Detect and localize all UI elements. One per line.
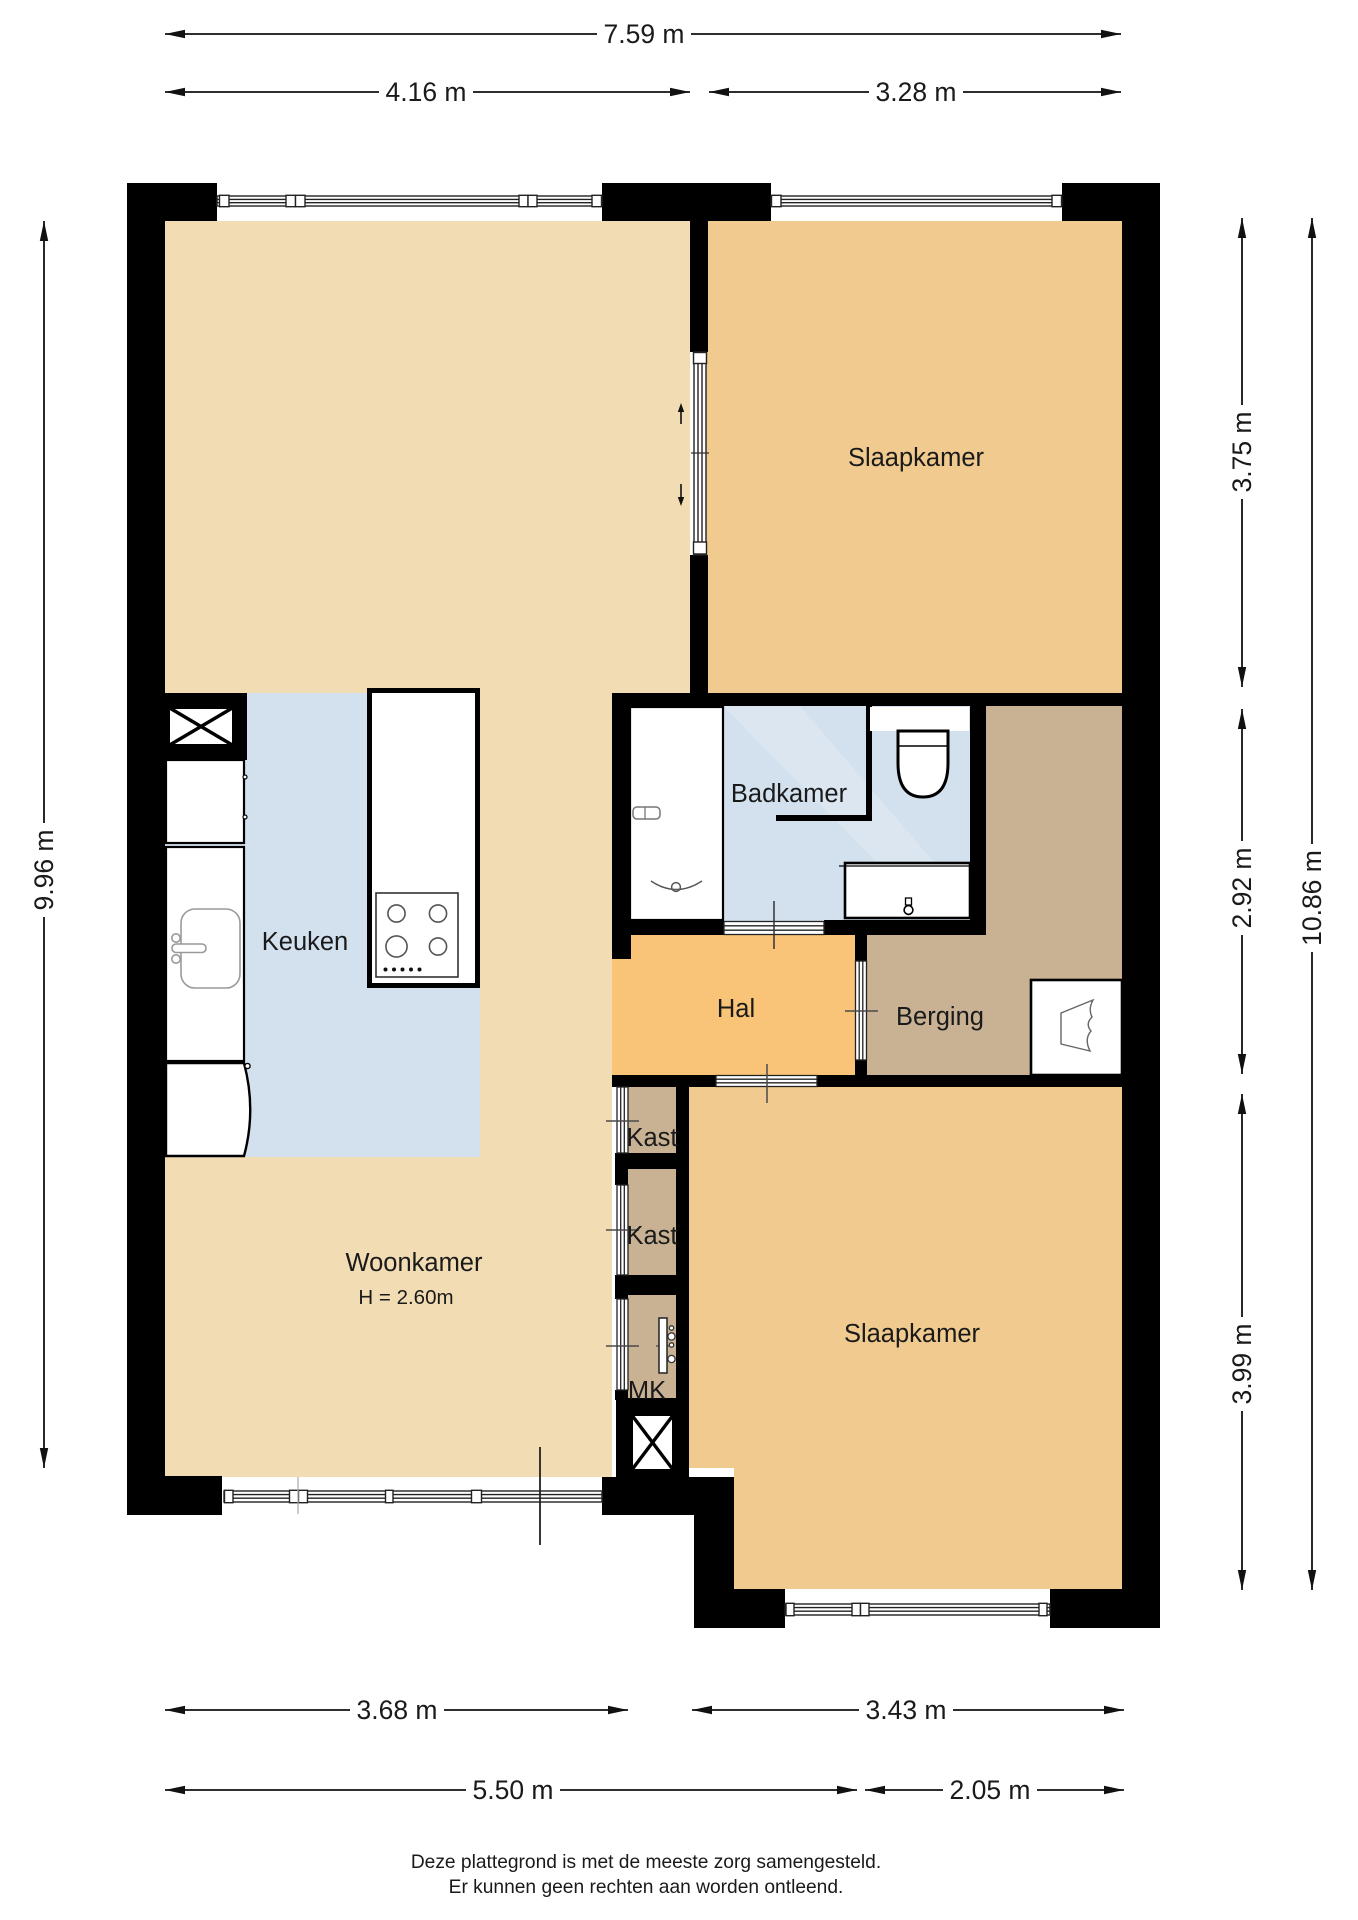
svg-text:3.68 m: 3.68 m	[356, 1695, 437, 1725]
svg-text:3.28 m: 3.28 m	[875, 77, 956, 107]
svg-text:10.86 m: 10.86 m	[1297, 850, 1327, 946]
svg-text:3.43 m: 3.43 m	[865, 1695, 946, 1725]
svg-text:2.05 m: 2.05 m	[949, 1775, 1030, 1805]
svg-text:Hal: Hal	[717, 995, 755, 1023]
svg-text:Berging: Berging	[896, 1003, 984, 1031]
svg-text:Slaapkamer: Slaapkamer	[844, 1320, 981, 1348]
svg-text:Kast: Kast	[626, 1222, 677, 1250]
svg-text:MK: MK	[628, 1377, 666, 1405]
svg-text:3.99 m: 3.99 m	[1227, 1323, 1257, 1404]
svg-text:Badkamer: Badkamer	[731, 780, 848, 808]
svg-text:9.96 m: 9.96 m	[29, 829, 59, 910]
svg-text:Deze plattegrond is met de mee: Deze plattegrond is met de meeste zorg s…	[411, 1852, 881, 1873]
svg-text:Er kunnen geen rechten aan wor: Er kunnen geen rechten aan worden ontlee…	[449, 1877, 844, 1898]
svg-text:2.92 m: 2.92 m	[1227, 847, 1257, 928]
svg-text:Woonkamer: Woonkamer	[345, 1249, 483, 1277]
svg-text:4.16 m: 4.16 m	[385, 77, 466, 107]
svg-text:7.59 m: 7.59 m	[603, 19, 684, 49]
svg-text:5.50 m: 5.50 m	[472, 1775, 553, 1805]
svg-text:Kast: Kast	[626, 1124, 677, 1152]
svg-text:3.75 m: 3.75 m	[1227, 411, 1257, 492]
svg-text:H = 2.60m: H = 2.60m	[358, 1286, 453, 1309]
svg-text:Keuken: Keuken	[262, 928, 349, 956]
svg-text:Slaapkamer: Slaapkamer	[848, 444, 985, 472]
